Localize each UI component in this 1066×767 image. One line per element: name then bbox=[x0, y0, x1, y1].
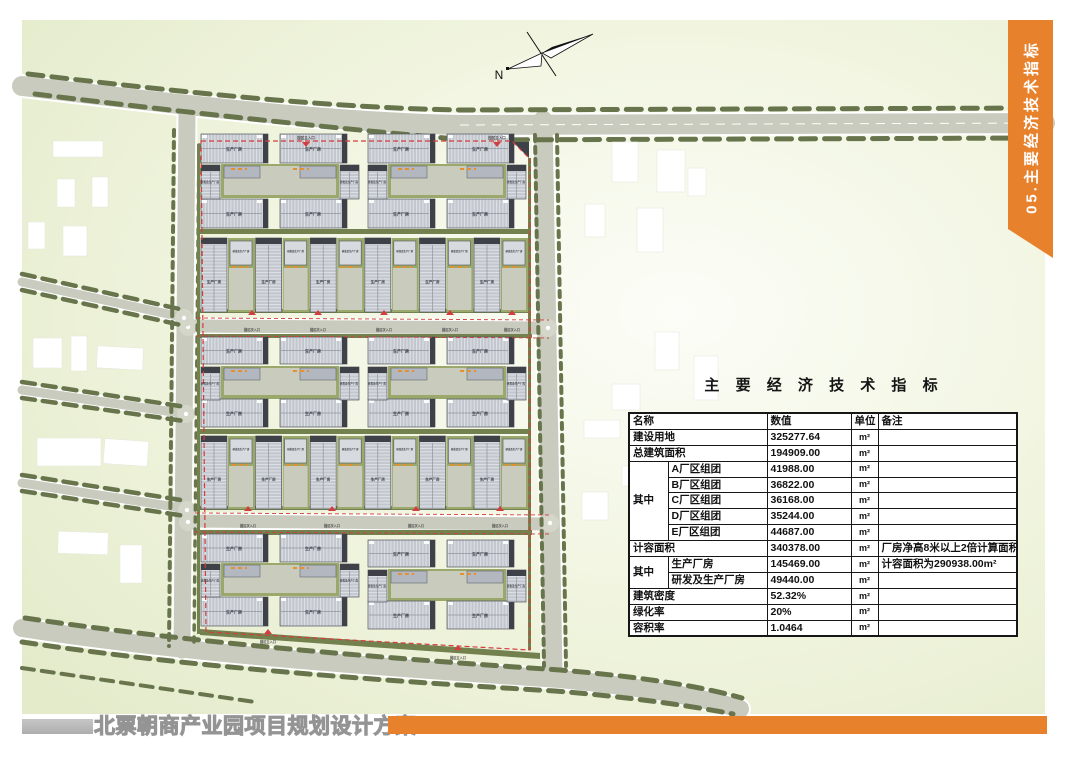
entrance-label: 园区次入口 bbox=[504, 327, 520, 332]
roof-chip bbox=[369, 135, 374, 138]
remark-cell bbox=[878, 620, 1017, 636]
factory-roof-edge bbox=[263, 134, 268, 163]
factory-roof-edge bbox=[310, 436, 336, 442]
unit-cell: m² bbox=[851, 477, 878, 493]
factory-roof-edge bbox=[263, 534, 268, 562]
courtyard-paving bbox=[447, 268, 471, 310]
factory-site-layer bbox=[195, 134, 551, 659]
factory-roof-edge bbox=[368, 165, 387, 171]
factory-roof-edge bbox=[474, 436, 500, 442]
building-label: 生产厂房 bbox=[472, 146, 488, 152]
unit-cell: m² bbox=[851, 429, 878, 445]
remark-cell bbox=[878, 572, 1017, 588]
roof-chip bbox=[503, 602, 508, 605]
indicators-panel: 主 要 经 济 技 术 指 标 名称数值单位备注建设用地325277.64m²总… bbox=[628, 376, 1020, 637]
value-cell: 52.32% bbox=[767, 588, 851, 604]
building-label: 生产厂房 bbox=[472, 410, 488, 416]
factory-roof-edge bbox=[310, 238, 336, 244]
rd-building bbox=[339, 439, 361, 463]
offsite-building bbox=[57, 179, 75, 207]
courtyard-paving bbox=[284, 466, 308, 507]
table-row: B厂区组团36822.00m² bbox=[629, 477, 1017, 493]
building-label: 生产厂房 bbox=[393, 410, 409, 416]
header-unit: 单位 bbox=[851, 413, 878, 429]
header-remark: 备注 bbox=[878, 413, 1017, 429]
junction-dot bbox=[548, 521, 552, 525]
entrance-label: 园区次入口 bbox=[324, 523, 340, 528]
rd-building bbox=[230, 241, 252, 265]
roof-chip bbox=[336, 135, 341, 138]
factory-roof-edge bbox=[342, 597, 347, 626]
name-cell: 建设用地 bbox=[629, 429, 767, 445]
offsite-building bbox=[655, 332, 679, 370]
building-label: 研发及生产厂房 bbox=[201, 579, 220, 583]
unit-cell: m² bbox=[851, 445, 878, 461]
building-label: 研发及生产厂房 bbox=[506, 249, 523, 253]
offsite-building bbox=[63, 226, 87, 256]
remark-cell: 计容面积为290938.00m² bbox=[878, 557, 1017, 573]
remark-cell bbox=[878, 461, 1017, 477]
unit-cell: m² bbox=[851, 604, 878, 620]
subname-cell: 生产厂房 bbox=[668, 557, 767, 573]
courtyard-building bbox=[391, 571, 427, 583]
factory-roof-edge bbox=[342, 134, 347, 163]
value-cell: 1.0464 bbox=[767, 620, 851, 636]
rd-building bbox=[448, 241, 470, 265]
value-cell: 36822.00 bbox=[767, 477, 851, 493]
indicators-title: 主 要 经 济 技 术 指 标 bbox=[628, 376, 1020, 395]
courtyard-paving bbox=[229, 268, 253, 310]
building-label: 研发及生产厂房 bbox=[368, 180, 387, 184]
building-label: 研发及生产厂房 bbox=[201, 382, 220, 386]
value-cell: 194909.00 bbox=[767, 445, 851, 461]
factory-roof-edge bbox=[509, 399, 514, 427]
courtyard-paving bbox=[284, 268, 308, 310]
factory-roof-edge bbox=[256, 436, 282, 442]
remark-cell bbox=[878, 604, 1017, 620]
table-row: 建设用地325277.64m² bbox=[629, 429, 1017, 445]
building-label: 研发及生产厂房 bbox=[396, 447, 413, 451]
factory-roof-edge bbox=[430, 399, 435, 427]
roof-chip bbox=[202, 400, 207, 403]
factory-roof-edge bbox=[365, 238, 391, 244]
offsite-building bbox=[637, 208, 663, 252]
roof-chip bbox=[424, 541, 429, 544]
factory-roof-edge bbox=[263, 199, 268, 228]
unit-cell: m² bbox=[851, 525, 878, 541]
roof-chip bbox=[424, 400, 429, 403]
value-cell: 49440.00 bbox=[767, 572, 851, 588]
indicators-table: 名称数值单位备注建设用地325277.64m²总建筑面积194909.00m²其… bbox=[628, 412, 1018, 637]
name-cell: 绿化率 bbox=[629, 604, 767, 620]
roof-chip bbox=[281, 400, 286, 403]
name-cell: 总建筑面积 bbox=[629, 445, 767, 461]
building-label: 生产厂房 bbox=[226, 146, 242, 152]
courtyard-building bbox=[300, 166, 336, 178]
courtyard-building bbox=[467, 571, 503, 583]
building-label: 生产厂房 bbox=[226, 545, 242, 551]
building-label: 研发及生产厂房 bbox=[451, 249, 468, 253]
entrance-label: 园区次入口 bbox=[310, 327, 326, 332]
building-label: 研发及生产厂房 bbox=[342, 447, 359, 451]
courtyard-building bbox=[467, 368, 503, 380]
remark-cell bbox=[878, 493, 1017, 509]
entrance-label: 园区次入口 bbox=[492, 523, 508, 528]
subname-cell: A厂区组团 bbox=[668, 461, 767, 477]
table-row: 建筑密度52.32%m² bbox=[629, 588, 1017, 604]
compass-dot bbox=[506, 67, 509, 70]
entrance-label: 园区主入口 bbox=[260, 639, 276, 644]
roof-chip bbox=[281, 598, 286, 601]
building-label: 生产厂房 bbox=[207, 477, 222, 482]
factory-roof-edge bbox=[368, 367, 387, 373]
building-label: 生产厂房 bbox=[425, 477, 440, 482]
roof-chip bbox=[281, 135, 286, 138]
roof-chip bbox=[336, 338, 341, 341]
junction-dot bbox=[185, 508, 189, 512]
unit-cell: m² bbox=[851, 493, 878, 509]
building-label: 研发及生产厂房 bbox=[507, 180, 526, 184]
rd-building bbox=[230, 439, 252, 463]
factory-roof-edge bbox=[263, 597, 268, 626]
roof-chip bbox=[448, 400, 453, 403]
table-row: 其中生产厂房145469.00m²计容面积为290938.00m² bbox=[629, 557, 1017, 573]
section-ribbon: 05.主要经济技术指标 bbox=[1008, 20, 1053, 258]
building-label: 生产厂房 bbox=[305, 410, 321, 416]
factory-roof-edge bbox=[201, 238, 227, 244]
remark-cell: 厂房净高8米以上2倍计算面积 bbox=[878, 541, 1017, 557]
building-label: 生产厂房 bbox=[316, 279, 331, 284]
remark-cell bbox=[878, 509, 1017, 525]
building-label: 生产厂房 bbox=[393, 146, 409, 152]
building-label: 研发及生产厂房 bbox=[342, 249, 359, 253]
name-cell: 建筑密度 bbox=[629, 588, 767, 604]
remark-cell bbox=[878, 445, 1017, 461]
building-label: 生产厂房 bbox=[226, 348, 242, 354]
rd-building bbox=[448, 439, 470, 463]
unit-cell: m² bbox=[851, 509, 878, 525]
road bbox=[543, 120, 553, 672]
factory-roof-edge bbox=[256, 238, 282, 244]
north-label: N bbox=[495, 68, 504, 82]
building-label: 研发及生产厂房 bbox=[368, 382, 387, 386]
subname-cell: C厂区组团 bbox=[668, 493, 767, 509]
rd-building bbox=[394, 241, 416, 265]
building-label: 生产厂房 bbox=[472, 348, 488, 354]
factory-roof-edge bbox=[201, 436, 227, 442]
factory-roof-edge bbox=[509, 199, 514, 228]
offsite-building bbox=[612, 142, 638, 182]
roof-chip bbox=[448, 602, 453, 605]
entrance-label: 园区次入口 bbox=[244, 327, 260, 332]
roof-chip bbox=[369, 541, 374, 544]
value-cell: 36168.00 bbox=[767, 493, 851, 509]
building-label: 研发及生产厂房 bbox=[287, 447, 304, 451]
roof-chip bbox=[448, 135, 453, 138]
factory-roof-edge bbox=[507, 570, 526, 576]
factory-roof-edge bbox=[509, 601, 514, 629]
roof-chip bbox=[257, 598, 262, 601]
factory-roof-edge bbox=[342, 337, 347, 364]
roof-chip bbox=[202, 135, 207, 138]
entrance-label: 园区次入口 bbox=[442, 327, 458, 332]
courtyard-building bbox=[300, 368, 336, 380]
building-label: 研发及生产厂房 bbox=[507, 382, 526, 386]
roof-chip bbox=[257, 200, 262, 203]
value-cell: 41988.00 bbox=[767, 461, 851, 477]
factory-roof-edge bbox=[342, 399, 347, 427]
road bbox=[182, 112, 187, 650]
footer-grey-bar bbox=[22, 719, 93, 734]
offsite-building bbox=[582, 492, 608, 520]
name-cell: 计容面积 bbox=[629, 541, 767, 557]
courtyard-paving bbox=[502, 268, 526, 310]
building-label: 研发及生产厂房 bbox=[396, 249, 413, 253]
remark-cell bbox=[878, 525, 1017, 541]
factory-roof-edge bbox=[430, 199, 435, 228]
factory-roof-edge bbox=[419, 436, 445, 442]
roof-chip bbox=[281, 200, 286, 203]
rd-building bbox=[503, 439, 525, 463]
section-ribbon-label: 05.主要经济技术指标 bbox=[1020, 40, 1041, 214]
building-label: 生产厂房 bbox=[425, 279, 440, 284]
roof-chip bbox=[336, 400, 341, 403]
remark-cell bbox=[878, 429, 1017, 445]
subname-cell: E厂区组团 bbox=[668, 525, 767, 541]
building-label: 生产厂房 bbox=[480, 477, 495, 482]
remark-cell bbox=[878, 588, 1017, 604]
roof-chip bbox=[257, 338, 262, 341]
factory-roof-edge bbox=[430, 540, 435, 567]
roof-chip bbox=[281, 338, 286, 341]
roof-chip bbox=[424, 135, 429, 138]
roof-chip bbox=[424, 602, 429, 605]
offsite-building bbox=[584, 420, 620, 438]
building-label: 生产厂房 bbox=[261, 477, 276, 482]
roof-chip bbox=[369, 400, 374, 403]
value-cell: 44687.00 bbox=[767, 525, 851, 541]
building-label: 生产厂房 bbox=[472, 551, 488, 557]
rd-building bbox=[503, 241, 525, 265]
entrance-label: 园区主入口 bbox=[450, 655, 466, 660]
roof-chip bbox=[448, 200, 453, 203]
roof-chip bbox=[424, 338, 429, 341]
building-label: 研发及生产厂房 bbox=[233, 447, 250, 451]
entrance-label: 园区主入口 bbox=[297, 135, 315, 140]
building-label: 生产厂房 bbox=[305, 609, 321, 615]
group-cell: 其中 bbox=[629, 557, 668, 589]
offsite-building bbox=[28, 222, 45, 249]
table-row: E厂区组团44687.00m² bbox=[629, 525, 1017, 541]
offsite-building bbox=[688, 168, 706, 196]
factory-roof-edge bbox=[430, 601, 435, 629]
building-label: 生产厂房 bbox=[305, 545, 321, 551]
junction-dot bbox=[546, 326, 550, 330]
factory-roof-edge bbox=[263, 337, 268, 364]
factory-roof-edge bbox=[507, 165, 526, 171]
courtyard-paving bbox=[229, 466, 253, 507]
building-label: 生产厂房 bbox=[393, 612, 409, 618]
building-label: 研发及生产厂房 bbox=[233, 249, 250, 253]
value-cell: 325277.64 bbox=[767, 429, 851, 445]
table-row: 计容面积340378.00m²厂房净高8米以上2倍计算面积 bbox=[629, 541, 1017, 557]
building-label: 研发及生产厂房 bbox=[507, 584, 526, 588]
offsite-building bbox=[58, 531, 109, 555]
group-cell: 其中 bbox=[629, 461, 668, 540]
page: 生产厂房生产厂房生产厂房生产厂房研发及生产厂房研发及生产厂房生产厂房生产厂房生产… bbox=[0, 0, 1066, 767]
value-cell: 340378.00 bbox=[767, 541, 851, 557]
factory-roof-edge bbox=[340, 165, 359, 171]
building-label: 生产厂房 bbox=[472, 612, 488, 618]
table-header-row: 名称数值单位备注 bbox=[629, 413, 1017, 429]
building-label: 生产厂房 bbox=[472, 211, 488, 217]
building-label: 生产厂房 bbox=[207, 279, 222, 284]
building-label: 生产厂房 bbox=[371, 279, 386, 284]
offsite-building bbox=[33, 338, 62, 368]
building-label: 研发及生产厂房 bbox=[340, 579, 359, 583]
factory-roof-edge bbox=[263, 399, 268, 427]
factory-roof-edge bbox=[430, 134, 435, 163]
courtyard-building bbox=[300, 565, 336, 577]
roof-chip bbox=[257, 135, 262, 138]
factory-roof-edge bbox=[368, 570, 387, 576]
subname-cell: D厂区组团 bbox=[668, 509, 767, 525]
table-row: 绿化率20%m² bbox=[629, 604, 1017, 620]
subname-cell: B厂区组团 bbox=[668, 477, 767, 493]
factory-roof-edge bbox=[509, 540, 514, 567]
unit-cell: m² bbox=[851, 572, 878, 588]
courtyard-paving bbox=[393, 466, 417, 507]
unit-cell: m² bbox=[851, 620, 878, 636]
table-row: D厂区组团35244.00m² bbox=[629, 509, 1017, 525]
table-row: 容积率1.0464m² bbox=[629, 620, 1017, 636]
roof-chip bbox=[257, 535, 262, 538]
building-label: 研发及生产厂房 bbox=[340, 180, 359, 184]
factory-roof-edge bbox=[342, 199, 347, 228]
building-label: 生产厂房 bbox=[316, 477, 331, 482]
courtyard-paving bbox=[338, 268, 362, 310]
offsite-building bbox=[96, 346, 143, 370]
table-row: 其中A厂区组团41988.00m² bbox=[629, 461, 1017, 477]
factory-roof-edge bbox=[342, 534, 347, 562]
roof-chip bbox=[424, 200, 429, 203]
roof-chip bbox=[369, 602, 374, 605]
hedge bbox=[197, 144, 200, 634]
rd-building bbox=[285, 241, 307, 265]
offsite-building bbox=[53, 141, 103, 157]
building-label: 研发及生产厂房 bbox=[201, 180, 220, 184]
subname-cell: 研发及生产厂房 bbox=[668, 572, 767, 588]
rd-building bbox=[339, 241, 361, 265]
junction-dot bbox=[182, 316, 186, 320]
unit-cell: m² bbox=[851, 461, 878, 477]
building-label: 生产厂房 bbox=[393, 211, 409, 217]
offsite-building bbox=[37, 438, 101, 466]
factory-roof-edge bbox=[340, 564, 359, 570]
offsite-building bbox=[92, 177, 108, 207]
roof-chip bbox=[503, 541, 508, 544]
courtyard-building bbox=[224, 368, 260, 380]
building-label: 研发及生产厂房 bbox=[368, 584, 387, 588]
building-label: 生产厂房 bbox=[261, 279, 276, 284]
building-label: 生产厂房 bbox=[480, 279, 495, 284]
courtyard-building bbox=[224, 166, 260, 178]
entrance-label: 园区次入口 bbox=[408, 523, 424, 528]
entrance-label: 园区主入口 bbox=[488, 135, 506, 140]
roof-chip bbox=[257, 400, 262, 403]
factory-roof-edge bbox=[201, 564, 220, 570]
courtyard-paving bbox=[447, 466, 471, 507]
building-label: 生产厂房 bbox=[226, 410, 242, 416]
building-label: 生产厂房 bbox=[305, 146, 321, 152]
factory-roof-edge bbox=[509, 337, 514, 364]
footer-orange-bar bbox=[388, 716, 1047, 734]
entrance-label: 园区次入口 bbox=[376, 327, 392, 332]
factory-roof-edge bbox=[430, 337, 435, 364]
building-label: 研发及生产厂房 bbox=[340, 382, 359, 386]
roof-chip bbox=[336, 200, 341, 203]
remark-cell bbox=[878, 477, 1017, 493]
courtyard-building bbox=[467, 166, 503, 178]
factory-roof-edge bbox=[201, 165, 220, 171]
building-label: 生产厂房 bbox=[393, 551, 409, 557]
table-row: 研发及生产厂房49440.00m² bbox=[629, 572, 1017, 588]
courtyard-building bbox=[391, 166, 427, 178]
value-cell: 20% bbox=[767, 604, 851, 620]
courtyard-paving bbox=[393, 268, 417, 310]
building-label: 生产厂房 bbox=[305, 348, 321, 354]
courtyard-paving bbox=[338, 466, 362, 507]
header-name: 名称 bbox=[629, 413, 767, 429]
roof-chip bbox=[369, 338, 374, 341]
value-cell: 145469.00 bbox=[767, 557, 851, 573]
roof-chip bbox=[369, 200, 374, 203]
roof-chip bbox=[448, 541, 453, 544]
project-title: 北票朝商产业园项目规划设计方案 bbox=[94, 710, 417, 740]
building-label: 生产厂房 bbox=[371, 477, 386, 482]
roof-chip bbox=[503, 338, 508, 341]
unit-cell: m² bbox=[851, 557, 878, 573]
offsite-building bbox=[585, 204, 605, 237]
courtyard-building bbox=[391, 368, 427, 380]
offsite-building bbox=[103, 438, 149, 466]
rd-building bbox=[285, 439, 307, 463]
roof-chip bbox=[503, 200, 508, 203]
junction-dot bbox=[184, 412, 188, 416]
building-label: 研发及生产厂房 bbox=[451, 447, 468, 451]
factory-roof-edge bbox=[509, 134, 514, 163]
rd-building bbox=[394, 439, 416, 463]
factory-roof-edge bbox=[474, 238, 500, 244]
hedge bbox=[200, 229, 528, 234]
roof-chip bbox=[281, 535, 286, 538]
courtyard-building bbox=[224, 565, 260, 577]
table-row: C厂区组团36168.00m² bbox=[629, 493, 1017, 509]
table-row: 总建筑面积194909.00m² bbox=[629, 445, 1017, 461]
offsite-building bbox=[657, 150, 685, 192]
building-label: 研发及生产厂房 bbox=[287, 249, 304, 253]
roof-chip bbox=[448, 338, 453, 341]
factory-roof-edge bbox=[507, 367, 526, 373]
name-cell: 容积率 bbox=[629, 620, 767, 636]
building-label: 研发及生产厂房 bbox=[506, 447, 523, 451]
unit-cell: m² bbox=[851, 588, 878, 604]
value-cell: 35244.00 bbox=[767, 509, 851, 525]
offsite-building bbox=[120, 545, 142, 583]
roof-chip bbox=[202, 200, 207, 203]
factory-roof-edge bbox=[365, 436, 391, 442]
building-label: 生产厂房 bbox=[393, 348, 409, 354]
